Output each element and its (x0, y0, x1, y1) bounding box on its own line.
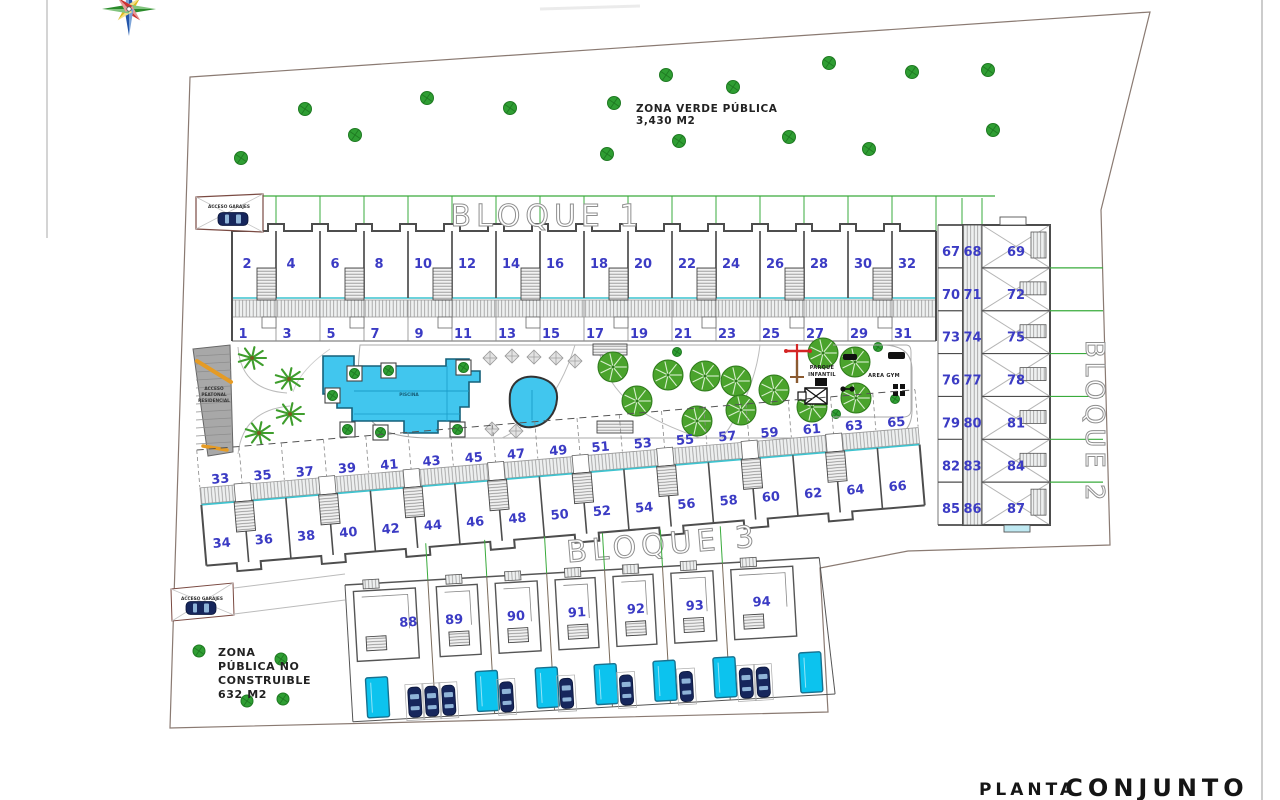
end-wall (201, 505, 206, 566)
unit-divider (370, 491, 375, 552)
rect (427, 693, 436, 699)
tree-icon (840, 347, 870, 377)
unit-number: 36 (254, 532, 273, 548)
villa-terrace-box (446, 574, 462, 584)
sheet-title-prefix: PLANTA (979, 780, 1077, 800)
rect (682, 690, 691, 695)
zona-publica-area-value: 632 M2 (218, 688, 267, 701)
unit-divider (708, 462, 713, 523)
villa-stairs-icon (743, 614, 764, 629)
unit-number: 65 (887, 415, 906, 431)
tree-icon (622, 386, 652, 416)
stairs-icon (597, 421, 633, 433)
unit-number: 6 (330, 257, 339, 272)
unit-number: 66 (888, 479, 907, 495)
unit-number: 62 (804, 486, 823, 502)
zona-publica-label3: CONSTRUIBLE (218, 674, 311, 687)
villa-terrace-box (740, 557, 756, 567)
circle (696, 420, 699, 423)
car-icon (499, 682, 514, 713)
circle (822, 352, 825, 355)
circle (667, 374, 670, 377)
car-icon (619, 675, 634, 706)
rect (756, 667, 771, 698)
rect (619, 675, 634, 706)
palm-tree-icon (277, 403, 304, 425)
stair-landing (572, 454, 589, 473)
unit-number: 14 (502, 257, 520, 272)
bloque1-label: BLOQUE 1 (451, 199, 644, 234)
stairs-icon (657, 465, 678, 496)
villa-terrace-box (505, 571, 521, 581)
unit-number: 61 (802, 422, 821, 438)
gym (893, 384, 898, 389)
piscina-label: PISCINA (399, 392, 419, 398)
unit-number: 10 (414, 257, 432, 272)
stairs-icon (319, 493, 340, 524)
unit-number: 7 (370, 327, 379, 342)
unit-number: 54 (635, 500, 654, 516)
unit-number: 26 (766, 257, 784, 272)
stair-landing (657, 447, 674, 466)
tree-icon (601, 148, 614, 161)
unit-number: 87 (1007, 502, 1025, 517)
driveway-line (234, 600, 345, 614)
sheet-title-main: CONJUNTO (1065, 774, 1248, 800)
car-icon (679, 671, 694, 702)
stairs-icon (826, 451, 847, 482)
driveway-line (234, 574, 345, 588)
car-icon (408, 687, 423, 718)
zona-verde-layer (235, 57, 1000, 165)
compass-rose-icon (102, 0, 156, 36)
villa-stairs-icon (449, 631, 470, 646)
tree-icon (421, 92, 434, 105)
tree-icon (459, 363, 469, 373)
stairs-icon (345, 268, 364, 300)
unit-number: 42 (381, 521, 400, 537)
stairs-icon (521, 268, 540, 300)
stairs-icon (488, 479, 509, 510)
rect (408, 687, 423, 718)
unit-number: 64 (846, 482, 865, 498)
unit-number: 68 (963, 245, 981, 260)
tree-icon (343, 425, 353, 435)
tree-icon (608, 97, 621, 110)
stairs-icon (785, 268, 804, 300)
tree-icon (653, 360, 683, 390)
parcel-divider (197, 450, 200, 487)
stair-landing (262, 317, 276, 328)
unit-number: 50 (550, 507, 569, 523)
rect (193, 604, 197, 613)
unit-number: 5 (326, 327, 335, 342)
circle (740, 409, 743, 412)
rect (225, 215, 229, 224)
tree-icon (690, 361, 720, 391)
rect (741, 675, 750, 681)
unit-number: 93 (685, 598, 704, 614)
stair-landing (438, 317, 452, 328)
unit-number: 91 (568, 605, 587, 621)
rect (204, 604, 209, 613)
circle (636, 400, 639, 403)
parcel-divider (239, 446, 242, 483)
palm-tree-icon (246, 422, 273, 444)
unit-number: 2 (242, 257, 251, 272)
garden-division-line (485, 540, 487, 577)
unit-number: 15 (542, 327, 560, 342)
tree-icon (349, 129, 362, 142)
unit-number: 51 (591, 440, 610, 456)
street-name-faint (540, 6, 640, 9)
unit-number: 81 (1007, 416, 1025, 431)
gym (843, 354, 857, 360)
pg (784, 349, 788, 353)
unit-number: 16 (546, 257, 564, 272)
tree-icon (987, 124, 1000, 137)
private-pool (653, 660, 677, 701)
end-wall (920, 445, 925, 506)
bloque2-label: BLOQUE 2 (1079, 340, 1109, 505)
entry-cap (1000, 217, 1026, 225)
unit-number: 76 (942, 374, 960, 389)
stair-landing (234, 483, 251, 502)
tree-icon (376, 428, 386, 438)
rect (441, 685, 456, 716)
stairs-icon (697, 268, 716, 300)
villa-stairs-icon (568, 624, 589, 639)
unit-number: 73 (942, 331, 960, 346)
rect (681, 678, 690, 684)
acceso-garajes-top-label: ACCESO GARAJES (208, 204, 250, 210)
band-left (345, 585, 353, 722)
unit-number: 80 (963, 416, 981, 431)
unit-number: 41 (380, 457, 399, 473)
unit-number: 13 (498, 327, 516, 342)
stairs-icon (572, 472, 593, 503)
circle (854, 361, 857, 364)
unit-number: 1 (238, 327, 247, 342)
unit-number: 58 (719, 493, 738, 509)
stairs-icon (234, 501, 255, 532)
unit-divider (539, 476, 544, 537)
gym (888, 352, 905, 359)
tree-icon (808, 338, 838, 368)
villa-terrace-box (622, 564, 638, 574)
unit-number: 32 (898, 257, 916, 272)
cf (815, 378, 827, 386)
car-icon (218, 213, 248, 226)
unit-number: 53 (633, 436, 652, 452)
unit-number: 22 (678, 257, 696, 272)
palm-tree-icon (239, 347, 266, 369)
acceso-peatonal-label3: RESIDENCIAL (198, 398, 230, 404)
unit-number: 4 (286, 257, 295, 272)
unit-number: 30 (854, 257, 872, 272)
parcel-divider (323, 439, 326, 476)
tree-icon (823, 57, 836, 70)
unit-number: 52 (592, 504, 611, 520)
unit-number: 82 (942, 459, 960, 474)
unit-number: 28 (810, 257, 828, 272)
zona-publica-label1: ZONA (218, 646, 255, 659)
unit-number: 79 (942, 416, 960, 431)
tree-icon (328, 391, 338, 401)
stairs-icon (609, 268, 628, 300)
unit-divider (455, 484, 460, 545)
car-icon (559, 678, 574, 709)
unit-number: 72 (1007, 288, 1025, 303)
terrace-box (1031, 489, 1046, 515)
car-icon (739, 668, 754, 699)
unit-number: 84 (1007, 459, 1025, 474)
parcel-divider (915, 390, 918, 427)
circle (811, 406, 814, 409)
unit-number: 21 (674, 327, 692, 342)
unit-number: 69 (1007, 245, 1025, 260)
stair-landing (741, 440, 758, 459)
unit-number: 19 (630, 327, 648, 342)
unit-divider (877, 448, 882, 509)
zona-publica-label2: PÚBLICA NO (218, 660, 299, 673)
circle (250, 356, 254, 360)
unit-divider (624, 469, 629, 530)
parcel-divider (366, 436, 369, 473)
site-plan-drawing: ZONA VERDE PÚBLICA 3,430 M2 246810121416… (0, 0, 1280, 800)
stair-landing (403, 469, 420, 488)
terrace-box (1031, 232, 1046, 258)
rect (562, 685, 571, 691)
unit-number: 3 (282, 327, 291, 342)
stair-landing (878, 317, 892, 328)
acceso-peatonal-label: ACCESO (204, 386, 224, 392)
tree-icon (598, 352, 628, 382)
unit-number: 92 (626, 602, 645, 618)
stairs-icon (433, 268, 452, 300)
private-pool (535, 667, 559, 708)
unit-number: 46 (466, 514, 485, 530)
tree-icon (841, 383, 871, 413)
unit-number: 20 (634, 257, 652, 272)
rect (444, 692, 453, 698)
unit-number: 59 (760, 425, 779, 441)
stair-landing (614, 317, 628, 328)
unit-number: 23 (718, 327, 736, 342)
tree-icon (982, 64, 995, 77)
circle (612, 366, 615, 369)
rect (445, 704, 454, 709)
car-icon (441, 685, 456, 716)
tree-icon (384, 366, 394, 376)
rect (502, 689, 511, 695)
rect (679, 671, 694, 702)
stair-landing (790, 317, 804, 328)
unit-number: 18 (590, 257, 608, 272)
tree-icon (504, 102, 517, 115)
unit-number: 48 (508, 511, 527, 527)
unit-number: 34 (212, 536, 231, 552)
rect (502, 701, 511, 706)
rect (410, 694, 419, 700)
rect (218, 213, 248, 226)
stairs-icon (873, 268, 892, 300)
stair-landing (319, 476, 336, 495)
site-plan-sheet: ZONA VERDE PÚBLICA 3,430 M2 246810121416… (0, 0, 1280, 800)
compass-center (127, 7, 131, 11)
circle (855, 397, 858, 400)
tree-icon (277, 693, 289, 705)
tree-icon (682, 406, 712, 436)
unit-divider (793, 455, 798, 516)
unit-number: 29 (850, 327, 868, 342)
gym (900, 384, 905, 389)
unit-number: 31 (894, 327, 912, 342)
decorations-layer (102, 0, 156, 36)
bloque2-layer: 6768697071727374757677787980818283848586… (938, 217, 1103, 532)
gym (900, 391, 905, 396)
unit-number: 47 (506, 447, 525, 463)
villa-stairs-icon (683, 617, 704, 632)
rect (759, 686, 768, 691)
private-pool (365, 677, 389, 718)
rect (411, 706, 420, 711)
stair-landing (702, 317, 716, 328)
tree-icon (235, 152, 248, 165)
tree-icon (863, 143, 876, 156)
stairs-icon (741, 458, 762, 489)
tree-icon (721, 366, 751, 396)
unit-number: 49 (549, 443, 568, 459)
tree-icon (906, 66, 919, 79)
tree-icon (727, 81, 740, 94)
tree-icon (726, 395, 756, 425)
car-icon (186, 602, 216, 615)
unit-number: 78 (1007, 374, 1025, 389)
unit-number: 44 (423, 518, 442, 534)
unit-number: 63 (844, 418, 863, 434)
villa-stairs-icon (508, 628, 529, 643)
stair-landing (488, 461, 505, 480)
unit-number: 94 (752, 595, 771, 611)
garden-division-line (426, 543, 428, 580)
tree-icon (783, 131, 796, 144)
tree-icon (673, 348, 682, 357)
unit-number: 83 (963, 459, 981, 474)
palm-tree-icon (276, 368, 303, 390)
unit-number: 57 (718, 429, 737, 445)
unit-number: 39 (337, 461, 356, 477)
villa-terrace-box (363, 579, 379, 589)
circle (257, 431, 261, 435)
unit-number: 8 (374, 257, 383, 272)
garden-division-line (545, 536, 547, 573)
car-icon (756, 667, 771, 698)
rect (758, 674, 767, 680)
tree-icon (660, 69, 673, 82)
rect (559, 678, 574, 709)
unit-number: 85 (942, 502, 960, 517)
circle (735, 380, 738, 383)
zona-verde-area-value: 3,430 M2 (636, 115, 695, 127)
villa-terrace-box (564, 567, 580, 577)
villa-stairs-icon (626, 621, 647, 636)
circle (288, 412, 292, 416)
circle (773, 389, 776, 392)
unit-number: 40 (339, 525, 358, 541)
stair-landing (350, 317, 364, 328)
area-gym-label: AREA GYM (868, 373, 900, 379)
tree-icon (350, 369, 360, 379)
unit-number: 43 (422, 454, 441, 470)
stair-landing (826, 433, 843, 452)
parcel-divider (281, 443, 284, 480)
unit-number: 24 (722, 257, 740, 272)
private-pool (799, 652, 823, 693)
unit-number: 77 (963, 374, 981, 389)
rect (499, 682, 514, 713)
unit-number: 37 (295, 464, 314, 480)
stair-landing (526, 317, 540, 328)
rect (424, 686, 439, 717)
unit-number: 71 (963, 288, 981, 303)
rect (622, 694, 631, 699)
unit-number: 88 (399, 615, 418, 631)
unit-number: 45 (464, 450, 483, 466)
tree-icon (299, 103, 312, 116)
unit-number: 89 (445, 612, 464, 628)
unit-number: 67 (942, 245, 960, 260)
zona-verde-label: ZONA VERDE PÚBLICA (636, 102, 778, 115)
stairs-icon (257, 268, 276, 300)
unit-number: 35 (253, 468, 272, 484)
unit-number: 74 (963, 331, 981, 346)
unit-number: 12 (458, 257, 476, 272)
unit-number: 90 (507, 609, 526, 625)
rect (742, 687, 751, 692)
private-pool (475, 670, 499, 711)
tree-icon (193, 645, 205, 657)
private-pool (713, 657, 737, 698)
rect (562, 697, 571, 702)
unit-number: 60 (761, 489, 780, 505)
rect (428, 705, 437, 710)
unit-number: 55 (675, 432, 694, 448)
unit-number: 38 (297, 528, 316, 544)
circle (704, 375, 707, 378)
entry-cap (1004, 525, 1030, 532)
car-icon (424, 686, 439, 717)
unit-number: 75 (1007, 331, 1025, 346)
parcel-divider (408, 432, 411, 469)
bed-arc (238, 347, 287, 393)
private-pool (594, 664, 618, 705)
rect (739, 668, 754, 699)
unit-number: 70 (942, 288, 960, 303)
tree-icon (874, 343, 883, 352)
pg (808, 349, 812, 353)
unit-number: 11 (454, 327, 472, 342)
parque-infantil-label: PARQUE (810, 365, 835, 371)
unit-number: 9 (414, 327, 423, 342)
unit-number: 86 (963, 502, 981, 517)
rect (236, 215, 241, 224)
tree-icon (453, 425, 463, 435)
acceso-garajes-bottom-label: ACCESO GARAJES (181, 596, 223, 602)
villa-terrace-box (680, 561, 696, 571)
parque-infantil-label2: INFANTIL (808, 372, 836, 378)
acceso-peatonal-label2: PEATONAL (201, 392, 227, 398)
